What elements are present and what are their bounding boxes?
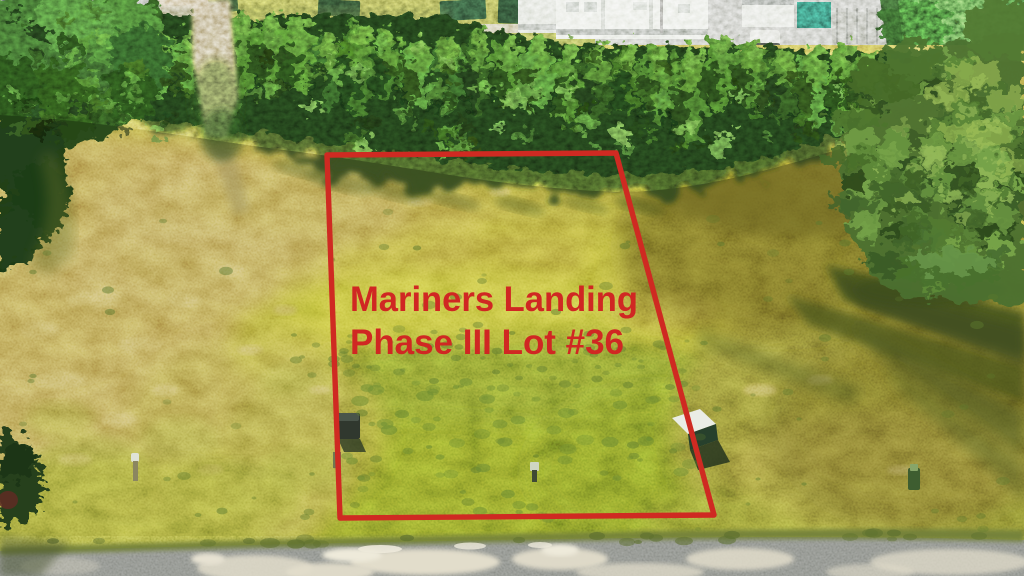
svg-text:Phase III Lot #36: Phase III Lot #36 — [350, 323, 624, 362]
svg-text:Mariners Landing: Mariners Landing — [350, 280, 638, 319]
